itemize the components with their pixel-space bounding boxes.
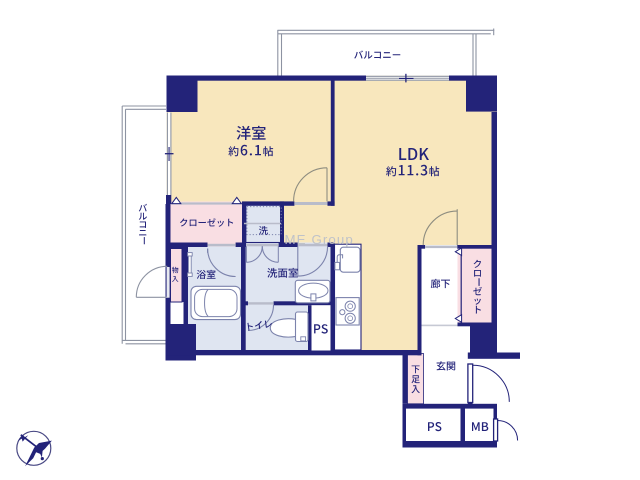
svg-text:ME Group: ME Group [285,232,354,247]
